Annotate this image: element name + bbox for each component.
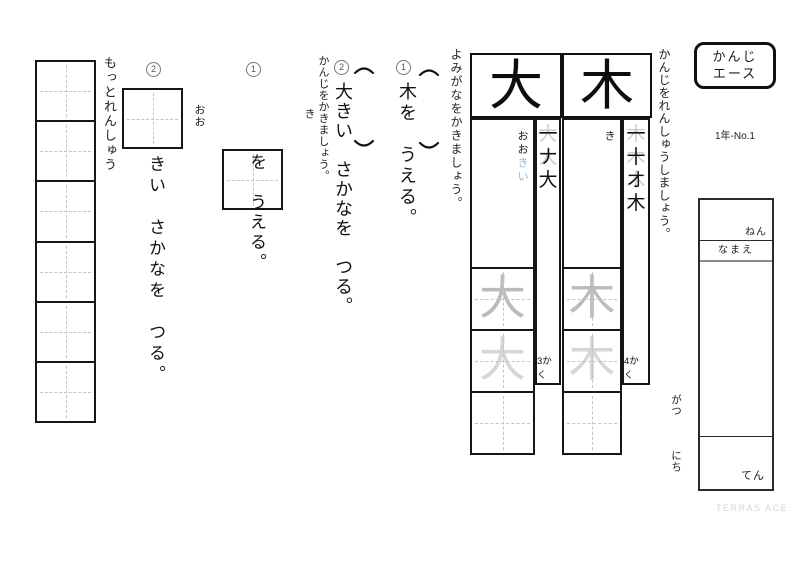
score-field[interactable]: てん — [700, 436, 772, 489]
practice-square[interactable] — [37, 303, 94, 363]
trace-square[interactable]: 大 — [472, 267, 533, 329]
bracket-open-icon — [418, 66, 440, 76]
writing-sentence-2: きい さかなを つる。 — [143, 155, 168, 386]
bracket-close-icon — [418, 142, 440, 152]
stroke-count-label: 3かく — [537, 353, 559, 381]
stroke-count-label: 4かく — [624, 353, 648, 381]
kanji-renshuu-instruction: かんじをれんしゅうしましょう。 — [656, 48, 673, 240]
reading-cell: き — [564, 120, 620, 267]
name-header: なまえ — [700, 241, 772, 262]
writing-instruction: かんじをかきましょう。 — [315, 55, 331, 182]
title-line-2: エース — [713, 66, 757, 83]
stroke-glyph: 大 — [538, 169, 558, 192]
more-practice-label: もっとれんしゅう — [100, 56, 119, 172]
practice-square[interactable] — [37, 182, 94, 242]
practice-square[interactable] — [37, 363, 94, 421]
stroke-glyph: 一 — [626, 123, 646, 146]
reading-okurigana: きい — [516, 157, 528, 184]
kanji-worksheet-page: もっとれんしゅう 2 おお きい さかなを つる。 1 き を うえる。 かんじ… — [0, 0, 800, 566]
reading-item-1: 1 木を うえる。 — [392, 58, 444, 318]
stroke-step: 木 十 — [626, 146, 646, 169]
trace-square[interactable]: 大 — [472, 329, 533, 391]
reading-cell: おおきい — [472, 120, 533, 267]
stroke-glyph: 一 — [538, 123, 558, 146]
stroke-step: 大 ナ — [538, 146, 558, 169]
bracket-open-icon — [353, 64, 375, 74]
stroke-glyph: ナ — [538, 146, 558, 169]
grade-and-number: 1年-No.1 — [694, 127, 776, 142]
stroke-step: 大 一 — [538, 123, 558, 146]
trace-square[interactable]: 木 — [564, 329, 620, 391]
brand-watermark: TERRAS ACE — [716, 503, 788, 513]
stroke-order-strip-ki: 木 一 木 十 木 オ 木 4かく — [622, 118, 650, 385]
stroke-glyph: 木 — [626, 192, 646, 215]
day-label: にち — [668, 450, 683, 473]
stroke-order-strip-dai: 大 一 大 ナ 大 3かく — [535, 118, 561, 385]
writing-answer-square-2[interactable] — [122, 88, 183, 149]
name-score-box: ねん なまえ てん — [698, 198, 774, 491]
kanji-practice-column-dai: おおきい 大 大 — [470, 118, 535, 455]
kanji-character: 木 — [580, 59, 634, 113]
bracket-close-icon — [353, 140, 375, 150]
writing-item-1-number: 1 — [246, 62, 261, 77]
kanji-character: 大 — [489, 59, 543, 113]
kanji-header-dai: 大 — [470, 53, 562, 118]
stroke-step: 大 — [538, 169, 558, 192]
writing-sentence-1: を うえる。 — [244, 153, 269, 273]
stroke-step: 木 オ — [626, 169, 646, 192]
stroke-glyph: 十 — [626, 146, 646, 169]
reading-instruction: よみがなをかきましょう。 — [448, 48, 465, 210]
year-label: ねん — [745, 223, 767, 238]
reading-main: おお — [516, 130, 528, 157]
name-field[interactable] — [700, 262, 772, 436]
trace-kanji: 大 — [479, 338, 526, 385]
reading-item-2-number: 2 — [334, 60, 349, 75]
practice-square[interactable] — [472, 391, 533, 453]
stroke-glyph: オ — [626, 169, 646, 192]
kanji-reading: おおきい — [514, 130, 530, 184]
year-field[interactable]: ねん — [700, 200, 772, 241]
reading-sentence-1: 木を うえる。 — [394, 82, 420, 229]
writing-item-2-number: 2 — [146, 62, 161, 77]
kanji-reading: き — [601, 130, 617, 144]
extra-practice-grid — [35, 60, 96, 423]
practice-square[interactable] — [37, 122, 94, 182]
reading-sentence-2: 大きい さかなを つる。 — [330, 82, 356, 316]
trace-square[interactable]: 木 — [564, 267, 620, 329]
trace-kanji: 大 — [479, 276, 526, 323]
reading-answer-slot-1[interactable] — [418, 76, 440, 140]
stroke-step: 木 一 — [626, 123, 646, 146]
reading-main: き — [603, 130, 615, 144]
kanji-practice-column-ki: き 木 木 — [562, 118, 622, 455]
practice-square[interactable] — [564, 391, 620, 453]
score-label: てん — [741, 467, 765, 483]
reading-answer-slot-2[interactable] — [353, 74, 375, 138]
writing-hint-2: おお — [191, 104, 207, 128]
month-label: がつ — [668, 394, 683, 417]
practice-square[interactable] — [37, 62, 94, 122]
stroke-step: 木 — [626, 192, 646, 215]
practice-square[interactable] — [37, 243, 94, 303]
title-line-1: かんじ — [712, 49, 757, 66]
trace-kanji: 木 — [569, 276, 616, 323]
trace-kanji: 木 — [569, 338, 616, 385]
reading-item-2: 2 大きい さかなを つる。 — [330, 58, 378, 358]
reading-item-1-number: 1 — [396, 60, 411, 75]
kanji-header-ki: 木 — [562, 53, 652, 118]
worksheet-title-badge: かんじ エース — [694, 42, 776, 89]
